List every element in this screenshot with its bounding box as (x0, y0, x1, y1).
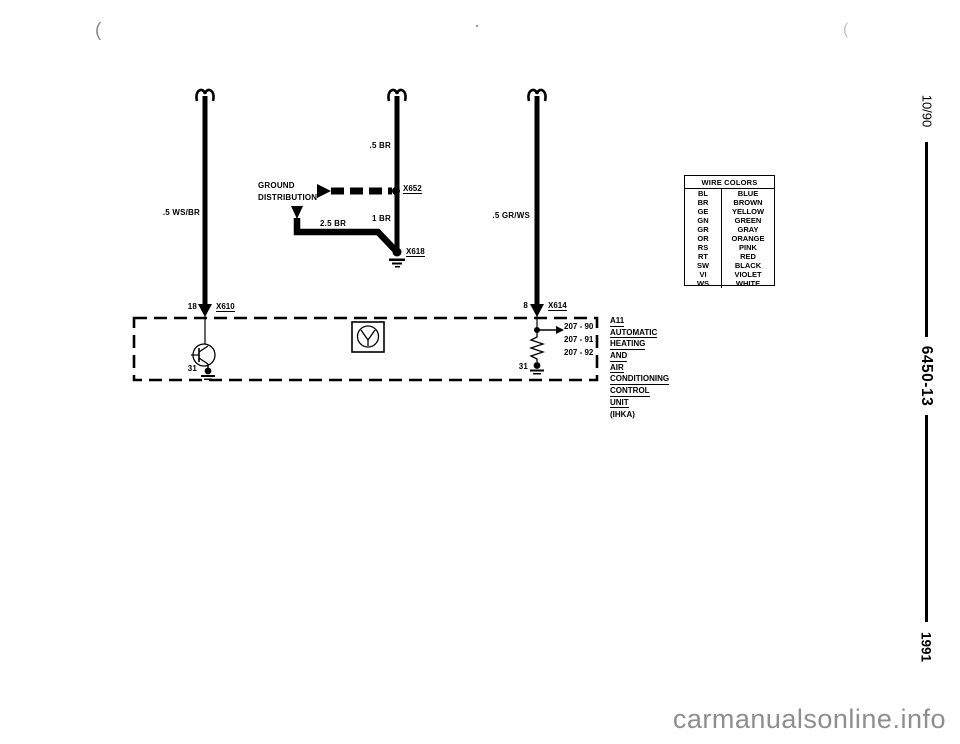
right-ground-terminal (534, 362, 541, 369)
wire-name: GRAY (722, 225, 774, 234)
transistor-collector (199, 346, 208, 352)
left-ground-bar1 (201, 375, 215, 377)
wiring-diagram (0, 0, 960, 744)
x618-ground-bar1 (389, 259, 405, 262)
wire-code: WS (685, 279, 722, 288)
wire-colors-table: WIRE COLORS BLBLUE BRBROWN GEYELLOW GNGR… (684, 175, 775, 286)
unit-note-ihka: (IHKA) (610, 410, 635, 419)
ref-arrow-head (556, 326, 564, 334)
margin-issue-date: 10/90 (920, 95, 935, 128)
unit-line-and: AND (610, 351, 627, 362)
terminal-label-31-left: 31 (184, 364, 197, 373)
wire-color-row: RTRED (685, 252, 774, 261)
x618-ground-bar3 (395, 266, 400, 268)
wire-name: BLACK (722, 261, 774, 270)
wire-color-row: GRGRAY (685, 225, 774, 234)
wire-code: RT (685, 252, 722, 261)
unit-line-conditioning: CONDITIONING (610, 374, 669, 385)
wire-name: YELLOW (722, 207, 774, 216)
wire-label-mid-upper: .5 BR (351, 141, 391, 150)
wire-code: GR (685, 225, 722, 234)
wire-color-row: GNGREEN (685, 216, 774, 225)
unit-line-a11: A11 (610, 316, 624, 327)
margin-doc-number: 6450-13 (917, 346, 935, 406)
wire-colors-body: BLBLUE BRBROWN GEYELLOW GNGREEN GRGRAY O… (685, 189, 774, 283)
wire-code: RS (685, 243, 722, 252)
sensor-mark-right (368, 330, 375, 340)
wire-color-row: GEYELLOW (685, 207, 774, 216)
right-ground-bar1 (530, 370, 544, 372)
transistor-emitter (199, 358, 208, 364)
wire-code: BR (685, 198, 722, 207)
resistor-symbol (531, 334, 543, 362)
wire-label-right: .5 GR/WS (478, 211, 530, 220)
wire-code: VI (685, 270, 722, 279)
wire-name: PINK (722, 243, 774, 252)
manual-page: ( ( (0, 0, 960, 744)
wire-label-left: .5 WS/BR (148, 208, 200, 217)
splice-x652-dot (392, 187, 400, 195)
wire-code: GN (685, 216, 722, 225)
wire-colors-title: WIRE COLORS (685, 176, 774, 189)
left-ground-terminal (205, 368, 212, 375)
wire-color-row: BLBLUE (685, 189, 774, 198)
wire-code: SW (685, 261, 722, 270)
connector-label-x614: X614 (548, 301, 567, 311)
pin-label-18: 18 (184, 302, 197, 311)
left-ground-bar2 (204, 379, 212, 381)
margin-rule-top (925, 142, 928, 337)
wire-name: RED (722, 252, 774, 261)
ref-207-90: 207 - 90 (564, 322, 593, 331)
unit-line-control: CONTROL (610, 386, 650, 397)
wire-code: GE (685, 207, 722, 216)
ground-distribution-label-line2: DISTRIBUTION (258, 193, 317, 202)
watermark-text: carmanualsonline.info (673, 704, 946, 735)
wire-code: OR (685, 234, 722, 243)
wire-label-ground-feed: 2.5 BR (320, 219, 346, 228)
margin-year: 1991 (919, 632, 934, 662)
wire-color-row: RSPINK (685, 243, 774, 252)
wire-name: GREEN (722, 216, 774, 225)
sensor-mark-left (361, 330, 368, 340)
unit-line-unit: UNIT (610, 398, 629, 409)
ref-207-91: 207 - 91 (564, 335, 593, 344)
wire-color-row: SWBLACK (685, 261, 774, 270)
wire-color-row: WSWHITE (685, 279, 774, 288)
connector-label-x618: X618 (406, 247, 425, 257)
wire-color-row: BRBROWN (685, 198, 774, 207)
ground-distribution-arrow-down (291, 206, 303, 219)
control-unit-description: A11 AUTOMATIC HEATING AND AIR CONDITIONI… (610, 315, 669, 420)
wire-name: VIOLET (722, 270, 774, 279)
wire-color-row: ORORANGE (685, 234, 774, 243)
connector-label-x610: X610 (216, 302, 235, 312)
unit-line-automatic: AUTOMATIC (610, 328, 657, 339)
ground-point-x618-dot (393, 248, 402, 257)
x618-ground-bar2 (392, 263, 402, 265)
wire-code: BL (685, 189, 722, 198)
wire-name: BROWN (722, 198, 774, 207)
unit-line-heating: HEATING (610, 339, 645, 350)
ground-distribution-label-line1: GROUND (258, 181, 295, 190)
wire-color-row: VIVIOLET (685, 270, 774, 279)
unit-line-air: AIR (610, 363, 624, 374)
ref-207-92: 207 - 92 (564, 348, 593, 357)
margin-rule-bottom (925, 415, 928, 622)
wire-name: WHITE (722, 279, 774, 288)
wire-name: ORANGE (722, 234, 774, 243)
pin-label-8: 8 (516, 301, 528, 310)
connector-label-x652: X652 (403, 184, 422, 194)
right-ground-bar2 (533, 373, 541, 375)
wire-name: BLUE (722, 189, 774, 198)
ground-distribution-arrow-right (317, 184, 331, 198)
wire-label-mid-lower: 1 BR (351, 214, 391, 223)
terminal-label-31-right: 31 (514, 362, 528, 371)
